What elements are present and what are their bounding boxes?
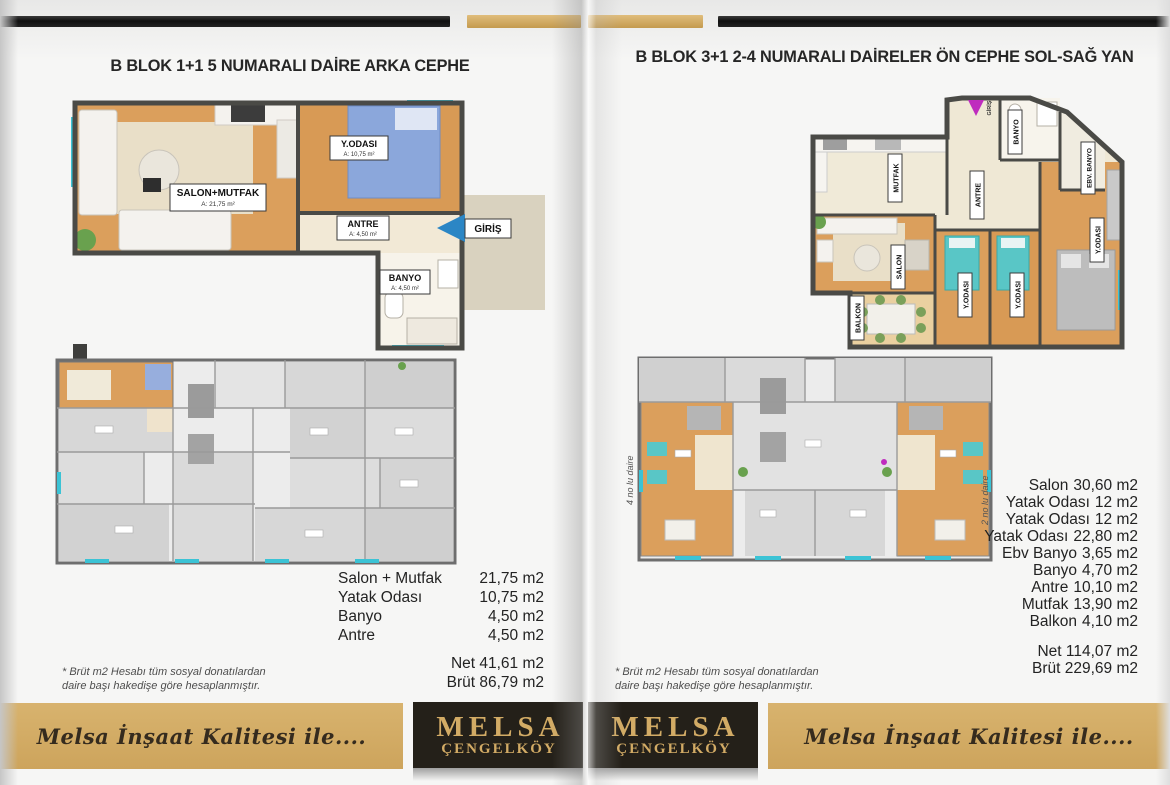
top-bar-black-left bbox=[0, 16, 450, 27]
page-edge-shadow bbox=[0, 0, 18, 785]
room-label-salon-mutfak: SALON+MUTFAK A: 21,75 m² bbox=[170, 184, 266, 211]
sofa-bottom bbox=[119, 210, 231, 250]
room-label-balkon: BALKON bbox=[850, 296, 864, 340]
room-label-yodasi-2: Y.ODASI bbox=[1010, 273, 1024, 317]
toilet bbox=[385, 292, 403, 318]
right-logo: MELSA ÇENGELKÖY bbox=[588, 702, 758, 768]
room-label-salon: SALON bbox=[891, 245, 905, 289]
page-edge-shadow bbox=[1156, 0, 1170, 785]
left-measurements: Salon + Mutfak21,75 m2 Yatak Odası10,75 … bbox=[338, 569, 544, 692]
shower bbox=[407, 318, 457, 344]
elevator-core bbox=[760, 432, 786, 462]
measurement-row: Salon30,60 m2 bbox=[928, 477, 1138, 494]
center-fold-shadow bbox=[552, 0, 622, 785]
measurement-row: Yatak Odası12 m2 bbox=[928, 511, 1138, 528]
left-footnote: * Brüt m2 Hesabı tüm sosyal donatılardan… bbox=[62, 666, 312, 693]
svg-text:GİRİŞ: GİRİŞ bbox=[474, 222, 502, 235]
measurement-row: Antre4,50 m2 bbox=[338, 626, 544, 645]
banner-slogan: Melsa İnşaat Kalitesi ile.... bbox=[804, 724, 1134, 749]
top-bar-gold-left bbox=[467, 15, 581, 28]
highlighted-unit-4 bbox=[641, 402, 733, 556]
kitchen-counter-side bbox=[277, 120, 298, 178]
svg-text:MUTFAK: MUTFAK bbox=[894, 163, 901, 192]
svg-text:BANYO: BANYO bbox=[389, 273, 422, 283]
top-bar-gold-right bbox=[588, 15, 703, 28]
measurement-row: Banyo4,50 m2 bbox=[338, 607, 544, 626]
measurement-row: Ebv Banyo3,65 m2 bbox=[928, 545, 1138, 562]
right-measurements: Salon30,60 m2 Yatak Odası12 m2 Yatak Oda… bbox=[928, 477, 1138, 677]
room-label-yodasi-3: Y.ODASI bbox=[1090, 218, 1104, 262]
measurement-row: Balkon4,10 m2 bbox=[928, 613, 1138, 630]
svg-text:A: 4,50 m²: A: 4,50 m² bbox=[391, 286, 419, 292]
washbasin bbox=[438, 260, 458, 288]
svg-text:ANTRE: ANTRE bbox=[348, 219, 379, 229]
right-footnote: * Brüt m2 Hesabı tüm sosyal donatılardan… bbox=[615, 666, 865, 693]
svg-text:A: 10,75 m²: A: 10,75 m² bbox=[343, 152, 374, 158]
svg-text:A: 4,50 m²: A: 4,50 m² bbox=[349, 232, 377, 238]
stair-core bbox=[760, 378, 786, 414]
stair-core bbox=[188, 384, 214, 418]
net-area: Net 41,61 m2 bbox=[338, 654, 544, 673]
svg-text:BANYO: BANYO bbox=[1014, 119, 1021, 145]
room-label-yodasi: Y.ODASI A: 10,75 m² bbox=[330, 136, 388, 160]
plan-shadow-panel bbox=[460, 195, 545, 310]
brut-area: Brüt 86,79 m2 bbox=[338, 673, 544, 692]
brut-area: Brüt 229,69 m2 bbox=[928, 660, 1138, 677]
svg-text:Y.ODASI: Y.ODASI bbox=[964, 281, 971, 309]
room-label-antre: ANTRE bbox=[970, 171, 984, 219]
right-page-title: B BLOK 3+1 2-4 NUMARALI DAİRELER ÖN CEPH… bbox=[633, 47, 1137, 67]
measurement-row: Banyo4,70 m2 bbox=[928, 562, 1138, 579]
left-building-plan bbox=[55, 344, 460, 566]
banner-slogan: Melsa İnşaat Kalitesi ile.... bbox=[37, 724, 367, 749]
svg-text:SALON+MUTFAK: SALON+MUTFAK bbox=[177, 188, 260, 199]
logo-location: ÇENGELKÖY bbox=[439, 741, 557, 757]
right-apartment-floorplan: GİRİŞ MUTFAK ANTRE BANYO EBV. BANYO SALO… bbox=[805, 90, 1135, 360]
measurement-row: Mutfak13,90 m2 bbox=[928, 596, 1138, 613]
left-logo: MELSA ÇENGELKÖY bbox=[413, 702, 583, 768]
svg-text:BALKON: BALKON bbox=[856, 303, 863, 333]
entrance-label: GİRİŞ bbox=[986, 100, 993, 115]
svg-text:ANTRE: ANTRE bbox=[976, 183, 983, 207]
room-label-yodasi-1: Y.ODASI bbox=[958, 273, 972, 317]
site-plan-label-unit4: 4 no lu daire bbox=[625, 435, 635, 505]
left-gold-banner: Melsa İnşaat Kalitesi ile.... bbox=[0, 703, 403, 769]
logo-reflection bbox=[413, 768, 583, 781]
svg-text:Y.ODASI: Y.ODASI bbox=[1096, 226, 1103, 254]
net-area: Net 114,07 m2 bbox=[928, 643, 1138, 660]
elevator-core bbox=[188, 434, 214, 464]
brochure-spread: B BLOK 1+1 5 NUMARALI DAİRE ARKA CEPHE B… bbox=[0, 0, 1170, 785]
logo-location: ÇENGELKÖY bbox=[614, 741, 732, 757]
room-label-banyo: BANYO bbox=[1008, 110, 1022, 154]
svg-text:Y.ODASI: Y.ODASI bbox=[1016, 281, 1023, 309]
room-label-banyo: BANYO A: 4,50 m² bbox=[380, 270, 430, 294]
measurement-row: Antre10,10 m2 bbox=[928, 579, 1138, 596]
left-page-title: B BLOK 1+1 5 NUMARALI DAİRE ARKA CEPHE bbox=[50, 56, 530, 76]
entrance-label: GİRİŞ bbox=[465, 219, 511, 238]
measurement-row: Yatak Odası10,75 m2 bbox=[338, 588, 544, 607]
tv-unit bbox=[143, 178, 161, 192]
room-label-ebv-banyo: EBV. BANYO bbox=[1081, 142, 1095, 194]
measurement-row: Yatak Odası22,80 m2 bbox=[928, 528, 1138, 545]
logo-name: MELSA bbox=[606, 713, 739, 741]
measurement-row: Yatak Odası12 m2 bbox=[928, 494, 1138, 511]
stove bbox=[231, 105, 265, 122]
right-gold-banner: Melsa İnşaat Kalitesi ile.... bbox=[768, 703, 1170, 769]
logo-name: MELSA bbox=[431, 713, 564, 741]
logo-reflection bbox=[588, 768, 758, 781]
left-apartment-floorplan: SALON+MUTFAK A: 21,75 m² Y.ODASI A: 10,7… bbox=[55, 92, 555, 357]
room-label-antre: ANTRE A: 4,50 m² bbox=[337, 216, 389, 240]
bed-pillows bbox=[395, 108, 437, 130]
svg-text:Y.ODASI: Y.ODASI bbox=[341, 139, 377, 149]
sofa-left bbox=[79, 110, 117, 215]
top-bar-black-right bbox=[718, 16, 1170, 27]
svg-text:EBV. BANYO: EBV. BANYO bbox=[1087, 148, 1094, 188]
measurement-row: Salon + Mutfak21,75 m2 bbox=[338, 569, 544, 588]
room-label-mutfak: MUTFAK bbox=[888, 154, 902, 202]
svg-text:SALON: SALON bbox=[897, 255, 904, 280]
svg-text:A: 21,75 m²: A: 21,75 m² bbox=[201, 201, 235, 208]
